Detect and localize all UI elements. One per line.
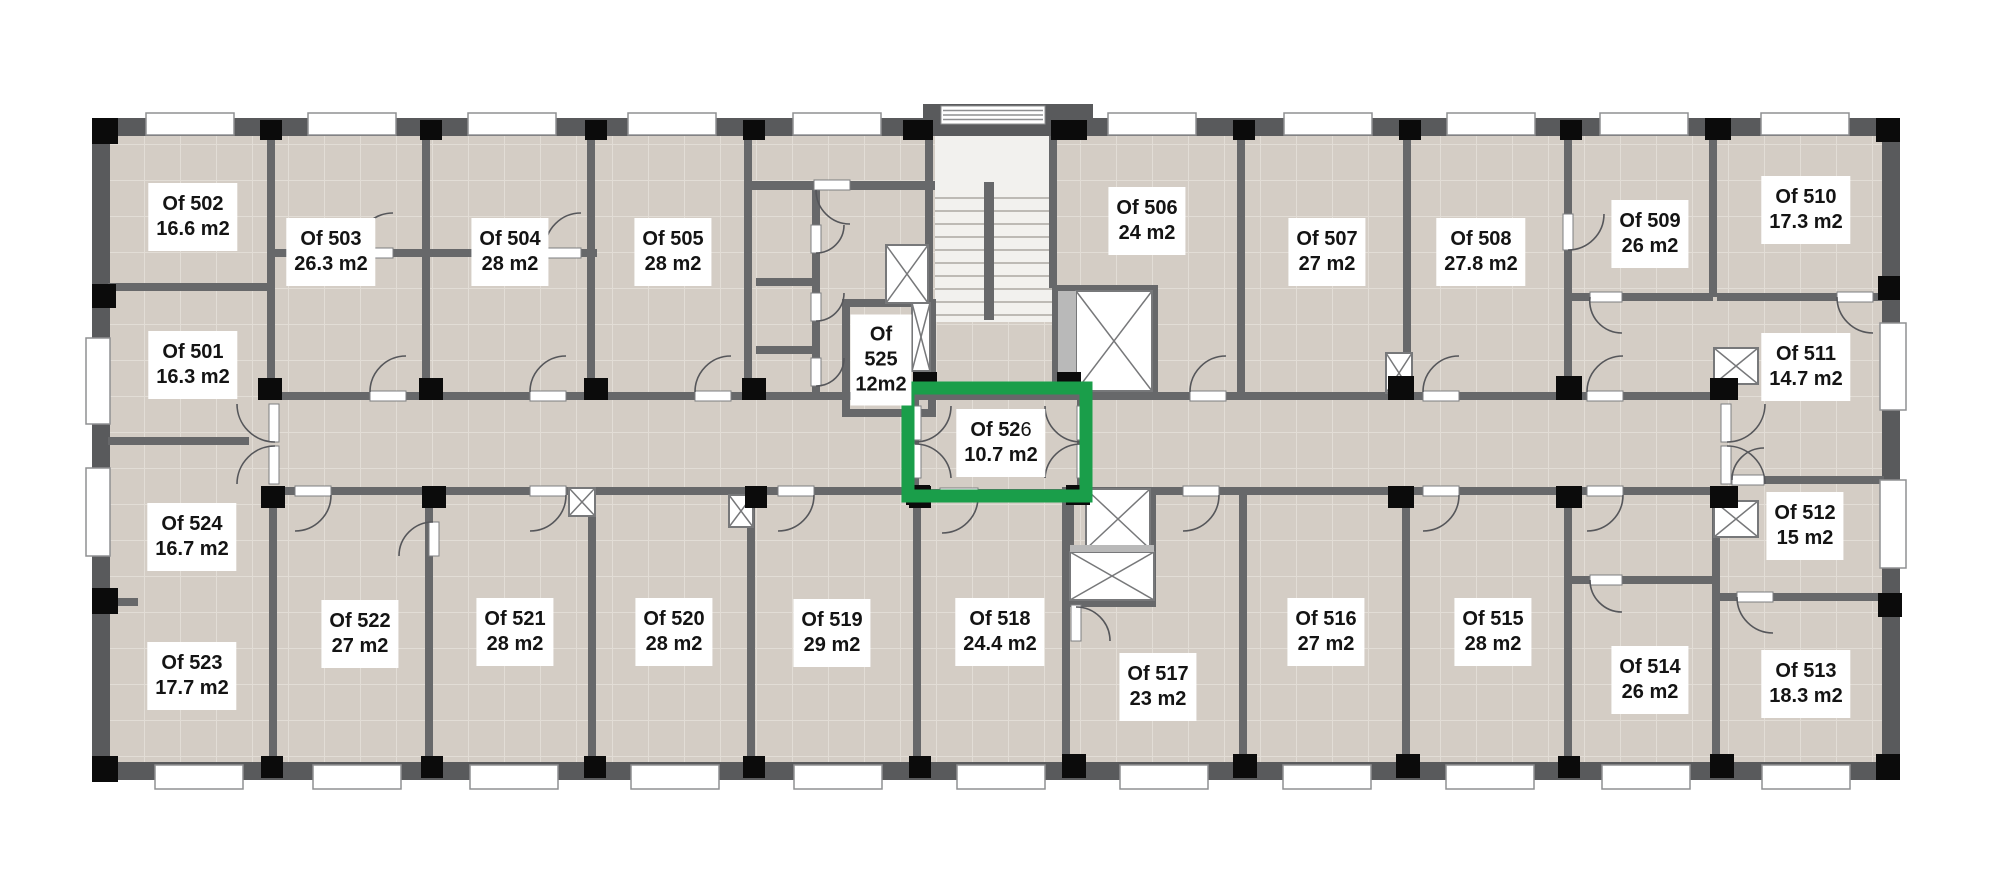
room-label-of-521[interactable]: Of 52128 m2 [476,598,553,666]
room-label-text: Of 526 [964,418,1037,443]
room-label-of-511[interactable]: Of 51114.7 m2 [1761,333,1850,401]
room-label-of-501[interactable]: Of 50116.3 m2 [148,331,237,399]
room-label-text: Of [855,323,906,348]
room-label-text: 27 m2 [329,634,390,659]
room-label-of-522[interactable]: Of 52227 m2 [321,600,398,668]
room-label-text: Of 523 [155,651,228,676]
room-label-of-518[interactable]: Of 51824.4 m2 [955,598,1044,666]
room-label-text: 17.7 m2 [155,676,228,701]
room-label-text: 23 m2 [1127,687,1188,712]
room-label-text: Of 515 [1462,607,1523,632]
room-label-text: Of 505 [642,227,703,252]
room-label-text: Of 522 [329,609,390,634]
room-label-text: Of 506 [1116,196,1177,221]
room-label-text: Of 504 [479,227,540,252]
room-label-of-507[interactable]: Of 50727 m2 [1288,218,1365,286]
room-number-tail: 6 [1020,419,1031,441]
room-label-of-526[interactable]: Of 52610.7 m2 [956,409,1045,477]
floor-plan: Of 50116.3 m2Of 50216.6 m2Of 50326.3 m2O… [0,0,2000,891]
room-label-text: 28 m2 [479,252,540,277]
room-label-text: 525 [855,348,906,373]
room-label-text: Of 508 [1444,227,1517,252]
room-label-text: 24.4 m2 [963,632,1036,657]
room-label-of-508[interactable]: Of 50827.8 m2 [1436,218,1525,286]
room-label-of-519[interactable]: Of 51929 m2 [793,599,870,667]
room-label-text: 16.3 m2 [156,365,229,390]
room-number-bold: Of 52 [970,419,1020,441]
room-label-text: Of 502 [156,192,229,217]
room-label-text: 12m2 [855,373,906,398]
room-label-text: Of 524 [155,512,228,537]
room-label-of-525[interactable]: Of52512m2 [850,315,911,406]
room-label-of-523[interactable]: Of 52317.7 m2 [147,642,236,710]
room-label-text: 24 m2 [1116,221,1177,246]
room-label-of-506[interactable]: Of 50624 m2 [1108,187,1185,255]
room-label-text: 29 m2 [801,633,862,658]
room-label-of-514[interactable]: Of 51426 m2 [1611,646,1688,714]
room-label-text: 26 m2 [1619,234,1680,259]
room-label-of-517[interactable]: Of 51723 m2 [1119,653,1196,721]
room-label-text: 18.3 m2 [1769,684,1842,709]
room-label-text: 26.3 m2 [294,252,367,277]
room-label-text: Of 521 [484,607,545,632]
room-label-text: 10.7 m2 [964,443,1037,468]
room-label-text: Of 516 [1295,607,1356,632]
room-label-text: Of 514 [1619,655,1680,680]
room-label-of-509[interactable]: Of 50926 m2 [1611,200,1688,268]
room-label-text: 17.3 m2 [1769,210,1842,235]
room-label-text: 27 m2 [1296,252,1357,277]
room-label-text: Of 519 [801,608,862,633]
room-label-text: Of 511 [1769,342,1842,367]
room-label-of-503[interactable]: Of 50326.3 m2 [286,218,375,286]
room-label-text: Of 507 [1296,227,1357,252]
room-label-text: Of 512 [1774,501,1835,526]
room-label-text: 27 m2 [1295,632,1356,657]
room-labels: Of 50116.3 m2Of 50216.6 m2Of 50326.3 m2O… [0,0,2000,891]
room-label-text: Of 517 [1127,662,1188,687]
room-label-of-524[interactable]: Of 52416.7 m2 [147,503,236,571]
room-label-text: Of 520 [643,607,704,632]
room-label-text: Of 509 [1619,209,1680,234]
room-label-text: 26 m2 [1619,680,1680,705]
room-label-of-520[interactable]: Of 52028 m2 [635,598,712,666]
room-label-text: Of 503 [294,227,367,252]
room-label-of-512[interactable]: Of 51215 m2 [1766,492,1843,560]
room-label-text: 28 m2 [1462,632,1523,657]
room-label-of-513[interactable]: Of 51318.3 m2 [1761,650,1850,718]
room-label-text: 14.7 m2 [1769,367,1842,392]
room-label-text: 16.7 m2 [155,537,228,562]
room-label-text: Of 518 [963,607,1036,632]
room-label-text: 28 m2 [484,632,545,657]
room-label-text: 27.8 m2 [1444,252,1517,277]
room-label-text: 16.6 m2 [156,217,229,242]
room-label-text: 28 m2 [643,632,704,657]
room-label-of-510[interactable]: Of 51017.3 m2 [1761,176,1850,244]
room-label-text: Of 510 [1769,185,1842,210]
room-label-of-502[interactable]: Of 50216.6 m2 [148,183,237,251]
room-label-of-505[interactable]: Of 50528 m2 [634,218,711,286]
room-label-text: Of 501 [156,340,229,365]
room-label-text: 15 m2 [1774,526,1835,551]
room-label-of-504[interactable]: Of 50428 m2 [471,218,548,286]
room-label-of-516[interactable]: Of 51627 m2 [1287,598,1364,666]
room-label-text: Of 513 [1769,659,1842,684]
room-label-text: 28 m2 [642,252,703,277]
room-label-of-515[interactable]: Of 51528 m2 [1454,598,1531,666]
